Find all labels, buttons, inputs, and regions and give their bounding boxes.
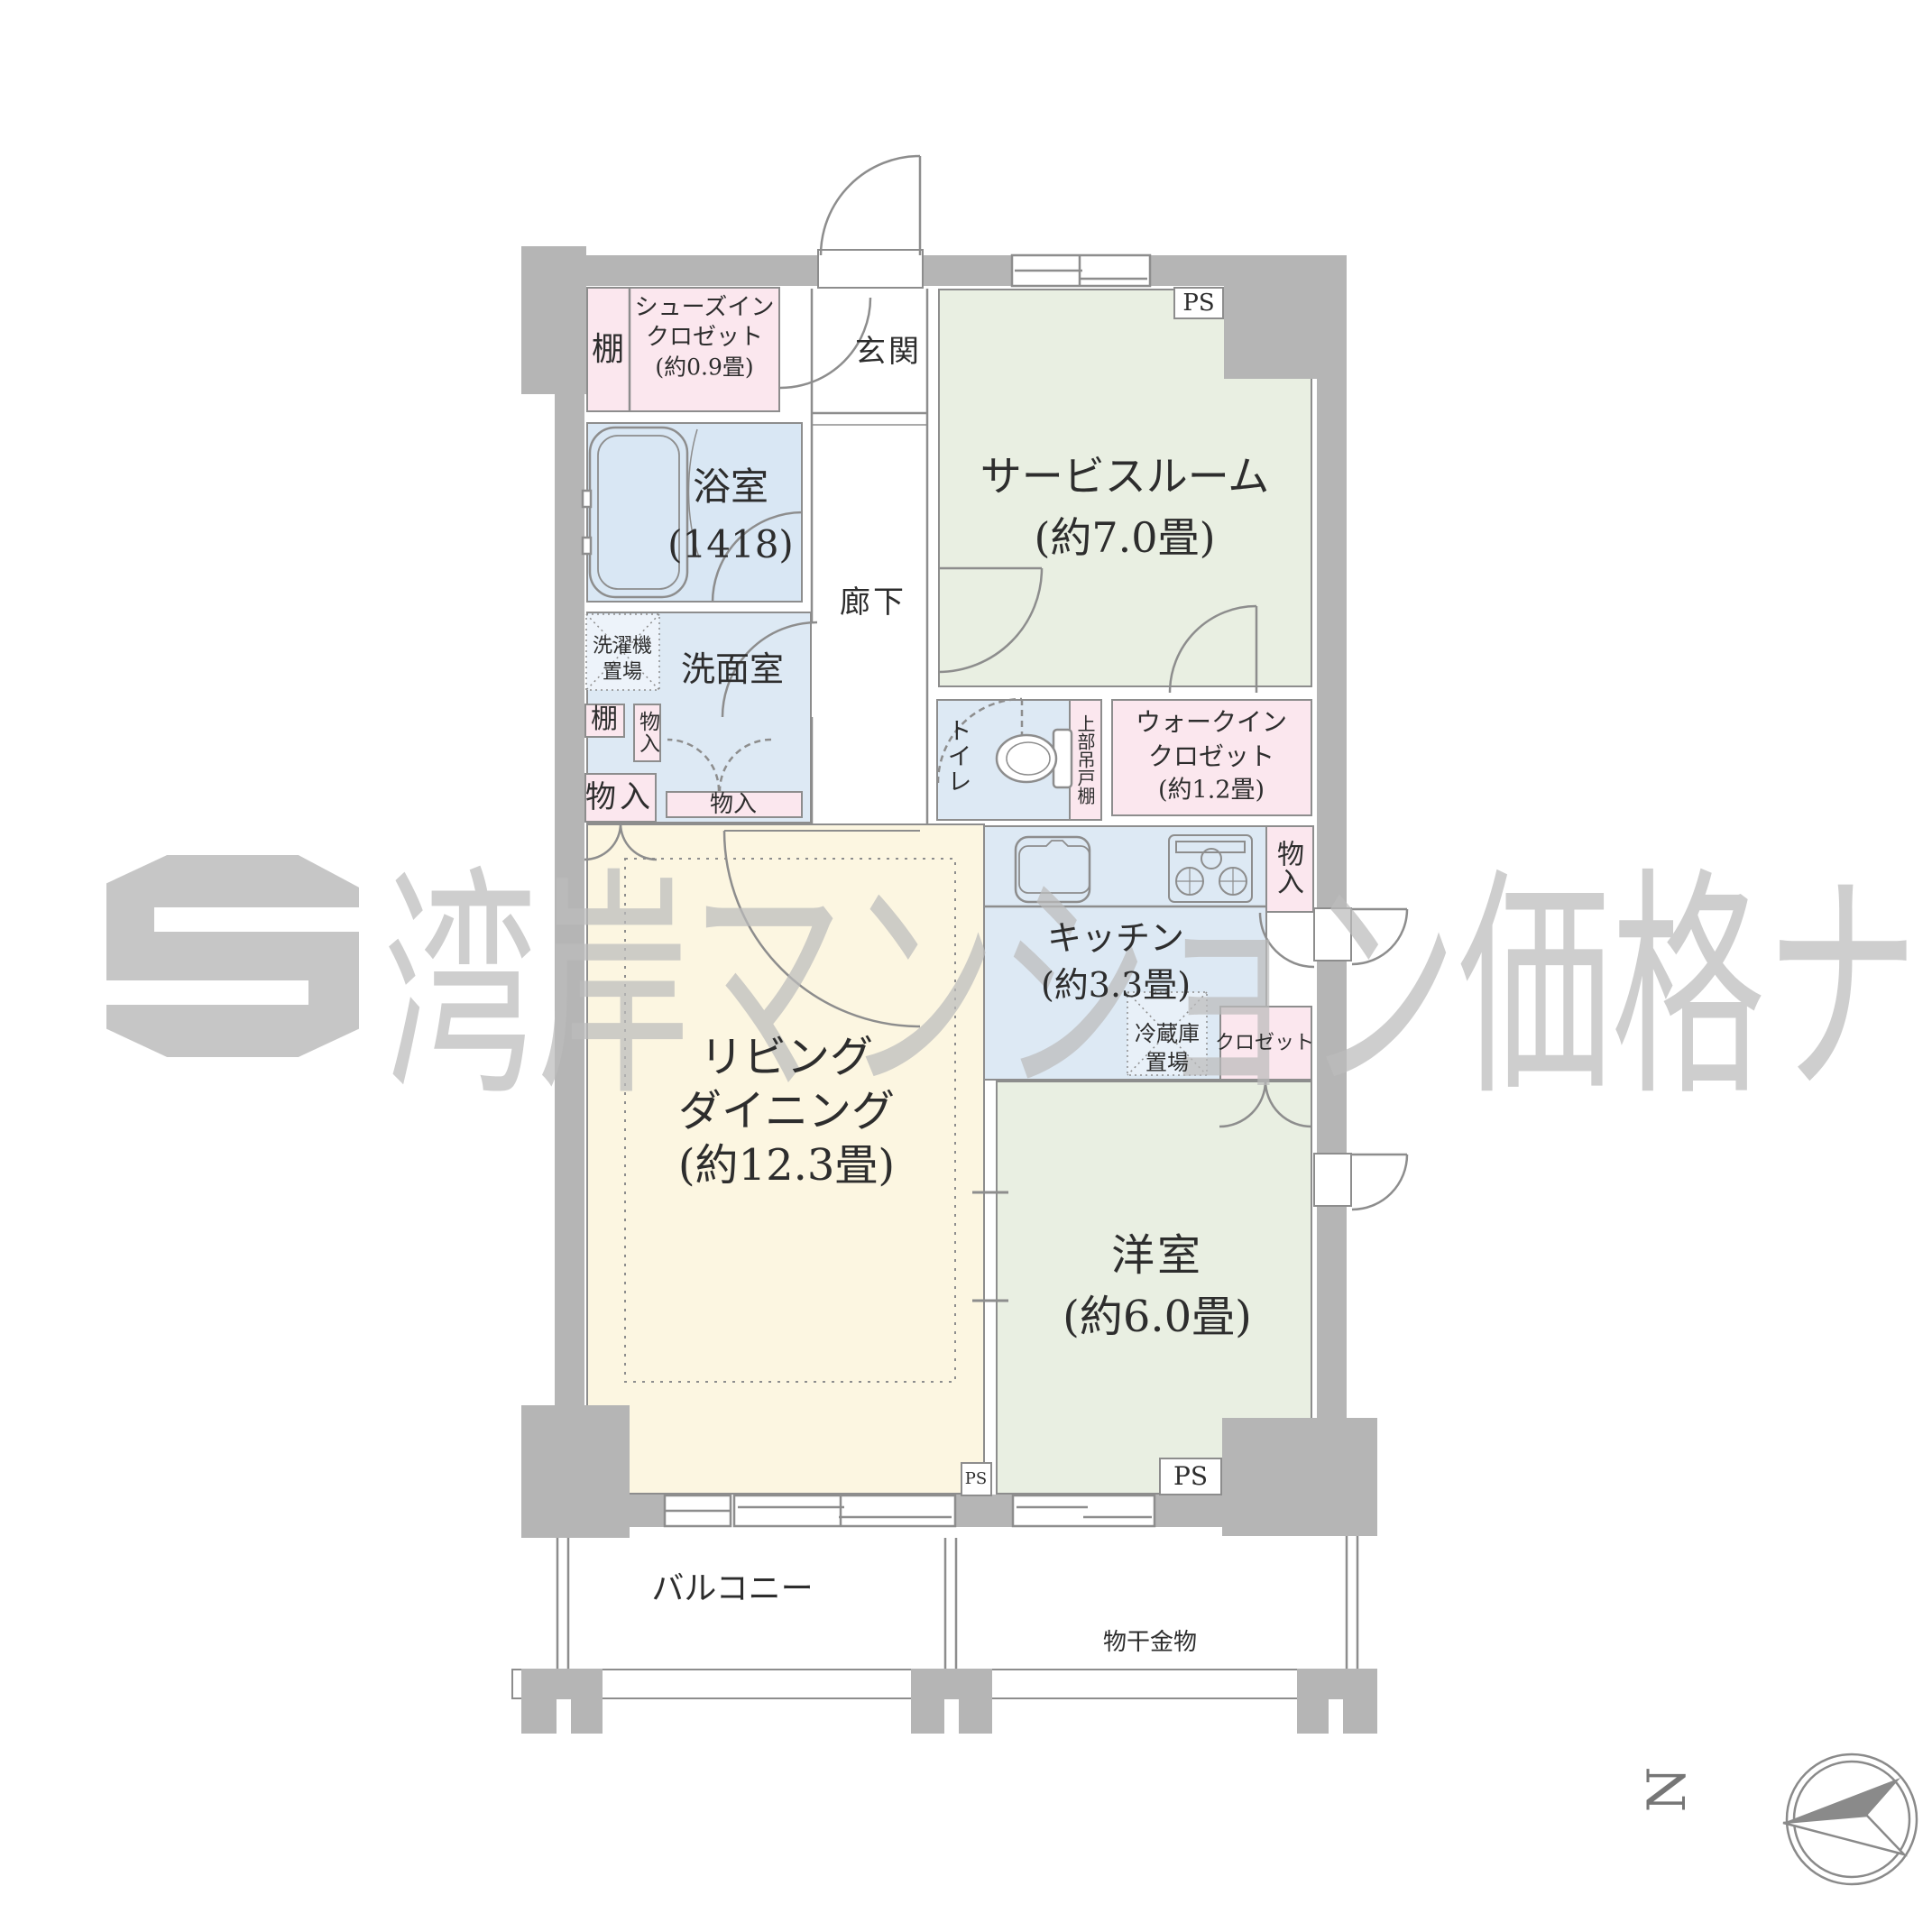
compass-north-label: N <box>1636 1767 1697 1813</box>
compass-icon <box>1783 1754 1917 1884</box>
label-storage-small: 物入 <box>637 711 658 754</box>
wall-top-a <box>584 255 821 286</box>
label-storage-left: 物入 <box>585 782 654 813</box>
label-living-1: リビング <box>700 1035 873 1079</box>
label-shoes-closet-3: (約0.9畳) <box>655 356 753 379</box>
label-wic-3: (約1.2畳) <box>1158 778 1265 803</box>
wall-right <box>1317 255 1347 1418</box>
wall-corner-bottom-right <box>1222 1418 1377 1536</box>
label-shelf: 棚 <box>591 706 618 733</box>
side-door-frame-1 <box>1313 907 1352 961</box>
label-balcony: バルコニー <box>651 1573 813 1605</box>
label-toilet: トイレ <box>945 718 970 794</box>
balcony-pier-left-gap <box>557 1699 571 1734</box>
label-laundry-1: 洗濯機 <box>593 637 652 657</box>
label-kitchen-size: (約3.3畳) <box>1041 968 1191 1002</box>
label-kitchen: キッチン <box>1047 921 1184 955</box>
wall-bottom-a <box>630 1495 665 1527</box>
label-storage-kitchen: 物入 <box>1274 840 1301 896</box>
wall-top-left-block <box>521 246 586 394</box>
label-upper-cabinet: 上部吊戸棚 <box>1076 714 1094 805</box>
entrance-door-frame <box>817 249 924 289</box>
wall-corner-bottom-left <box>521 1405 630 1538</box>
label-sic-shelf: 棚 <box>592 334 624 366</box>
label-service-room: サービスルーム <box>980 455 1270 497</box>
label-closet: クロゼット <box>1215 1034 1314 1053</box>
label-wic-2: クロゼット <box>1148 744 1274 769</box>
label-bedroom-size: (約6.0畳) <box>1063 1295 1252 1339</box>
balcony-pier-center-gap <box>944 1699 959 1734</box>
label-shoes-closet-2: クロゼット <box>646 326 763 349</box>
label-ps-top: PS <box>1182 291 1214 315</box>
label-storage-strip: 物入 <box>710 793 757 816</box>
label-genkan: 玄関 <box>855 336 922 367</box>
label-hallway: 廊下 <box>840 587 906 618</box>
side-door-frame-2 <box>1313 1153 1352 1207</box>
label-living-2: ダイニング <box>678 1090 895 1133</box>
label-bedroom: 洋室 <box>1111 1234 1203 1277</box>
label-ps-living: PS <box>965 1471 987 1487</box>
wall-top-c <box>1150 255 1317 286</box>
floorplan-canvas: 湾岸マンション価格ナビ 棚 シューズイン クロゼット (約0.9畳) 玄関 サー… <box>0 0 1932 1932</box>
label-fridge-2: 置場 <box>1145 1052 1189 1073</box>
label-wic-1: ウォークイン <box>1136 710 1287 735</box>
label-laundry-2: 置場 <box>603 663 642 683</box>
label-bathroom-size: (1418) <box>667 526 794 564</box>
label-bathroom: 浴室 <box>693 468 768 506</box>
wall-left <box>555 394 584 1405</box>
label-living-3: (約12.3畳) <box>678 1144 895 1187</box>
room-bathroom <box>586 422 803 603</box>
label-fridge-1: 冷蔵庫 <box>1135 1023 1200 1044</box>
wall-top-right-notch <box>1224 286 1317 379</box>
label-washroom: 洗面室 <box>681 652 784 686</box>
watermark-logo-icon <box>106 855 359 1057</box>
wall-top-b <box>920 255 1012 286</box>
label-service-room-size: (約7.0畳) <box>1034 517 1215 558</box>
label-shoes-closet-1: シューズイン <box>635 296 775 319</box>
balcony-pier-right-gap <box>1329 1699 1343 1734</box>
wall-bottom-b <box>955 1495 1013 1527</box>
wall-bottom-c <box>1155 1495 1222 1527</box>
label-drying-fixture: 物干金物 <box>1103 1631 1197 1654</box>
label-ps-bedroom: PS <box>1173 1464 1208 1489</box>
